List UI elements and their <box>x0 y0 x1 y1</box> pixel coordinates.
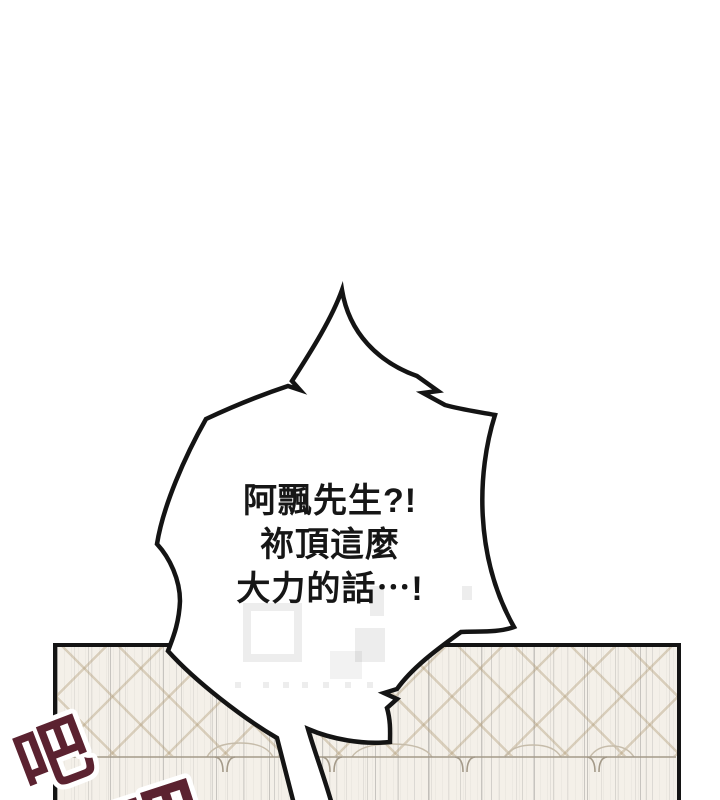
speech-text-line-3: 大力的話⋯! <box>170 567 490 611</box>
couch-cushion-tops <box>207 743 634 757</box>
speech-text: 阿飄先生?! 祢頂這麼 大力的話⋯! <box>170 479 490 611</box>
comic-page: 吧 吧 阿飄先生?! 祢頂這麼 大力的話⋯! <box>0 0 720 800</box>
sfx-group: 吧 吧 <box>4 704 220 800</box>
speech-text-line-2: 祢頂這麼 <box>170 523 490 567</box>
sfx-text-1: 吧 <box>4 704 103 800</box>
speech-text-line-1: 阿飄先生?! <box>170 479 490 523</box>
couch-back-line <box>57 757 676 772</box>
sfx-text-2: 吧 <box>101 768 220 800</box>
panel-artwork: 吧 吧 <box>0 0 720 800</box>
